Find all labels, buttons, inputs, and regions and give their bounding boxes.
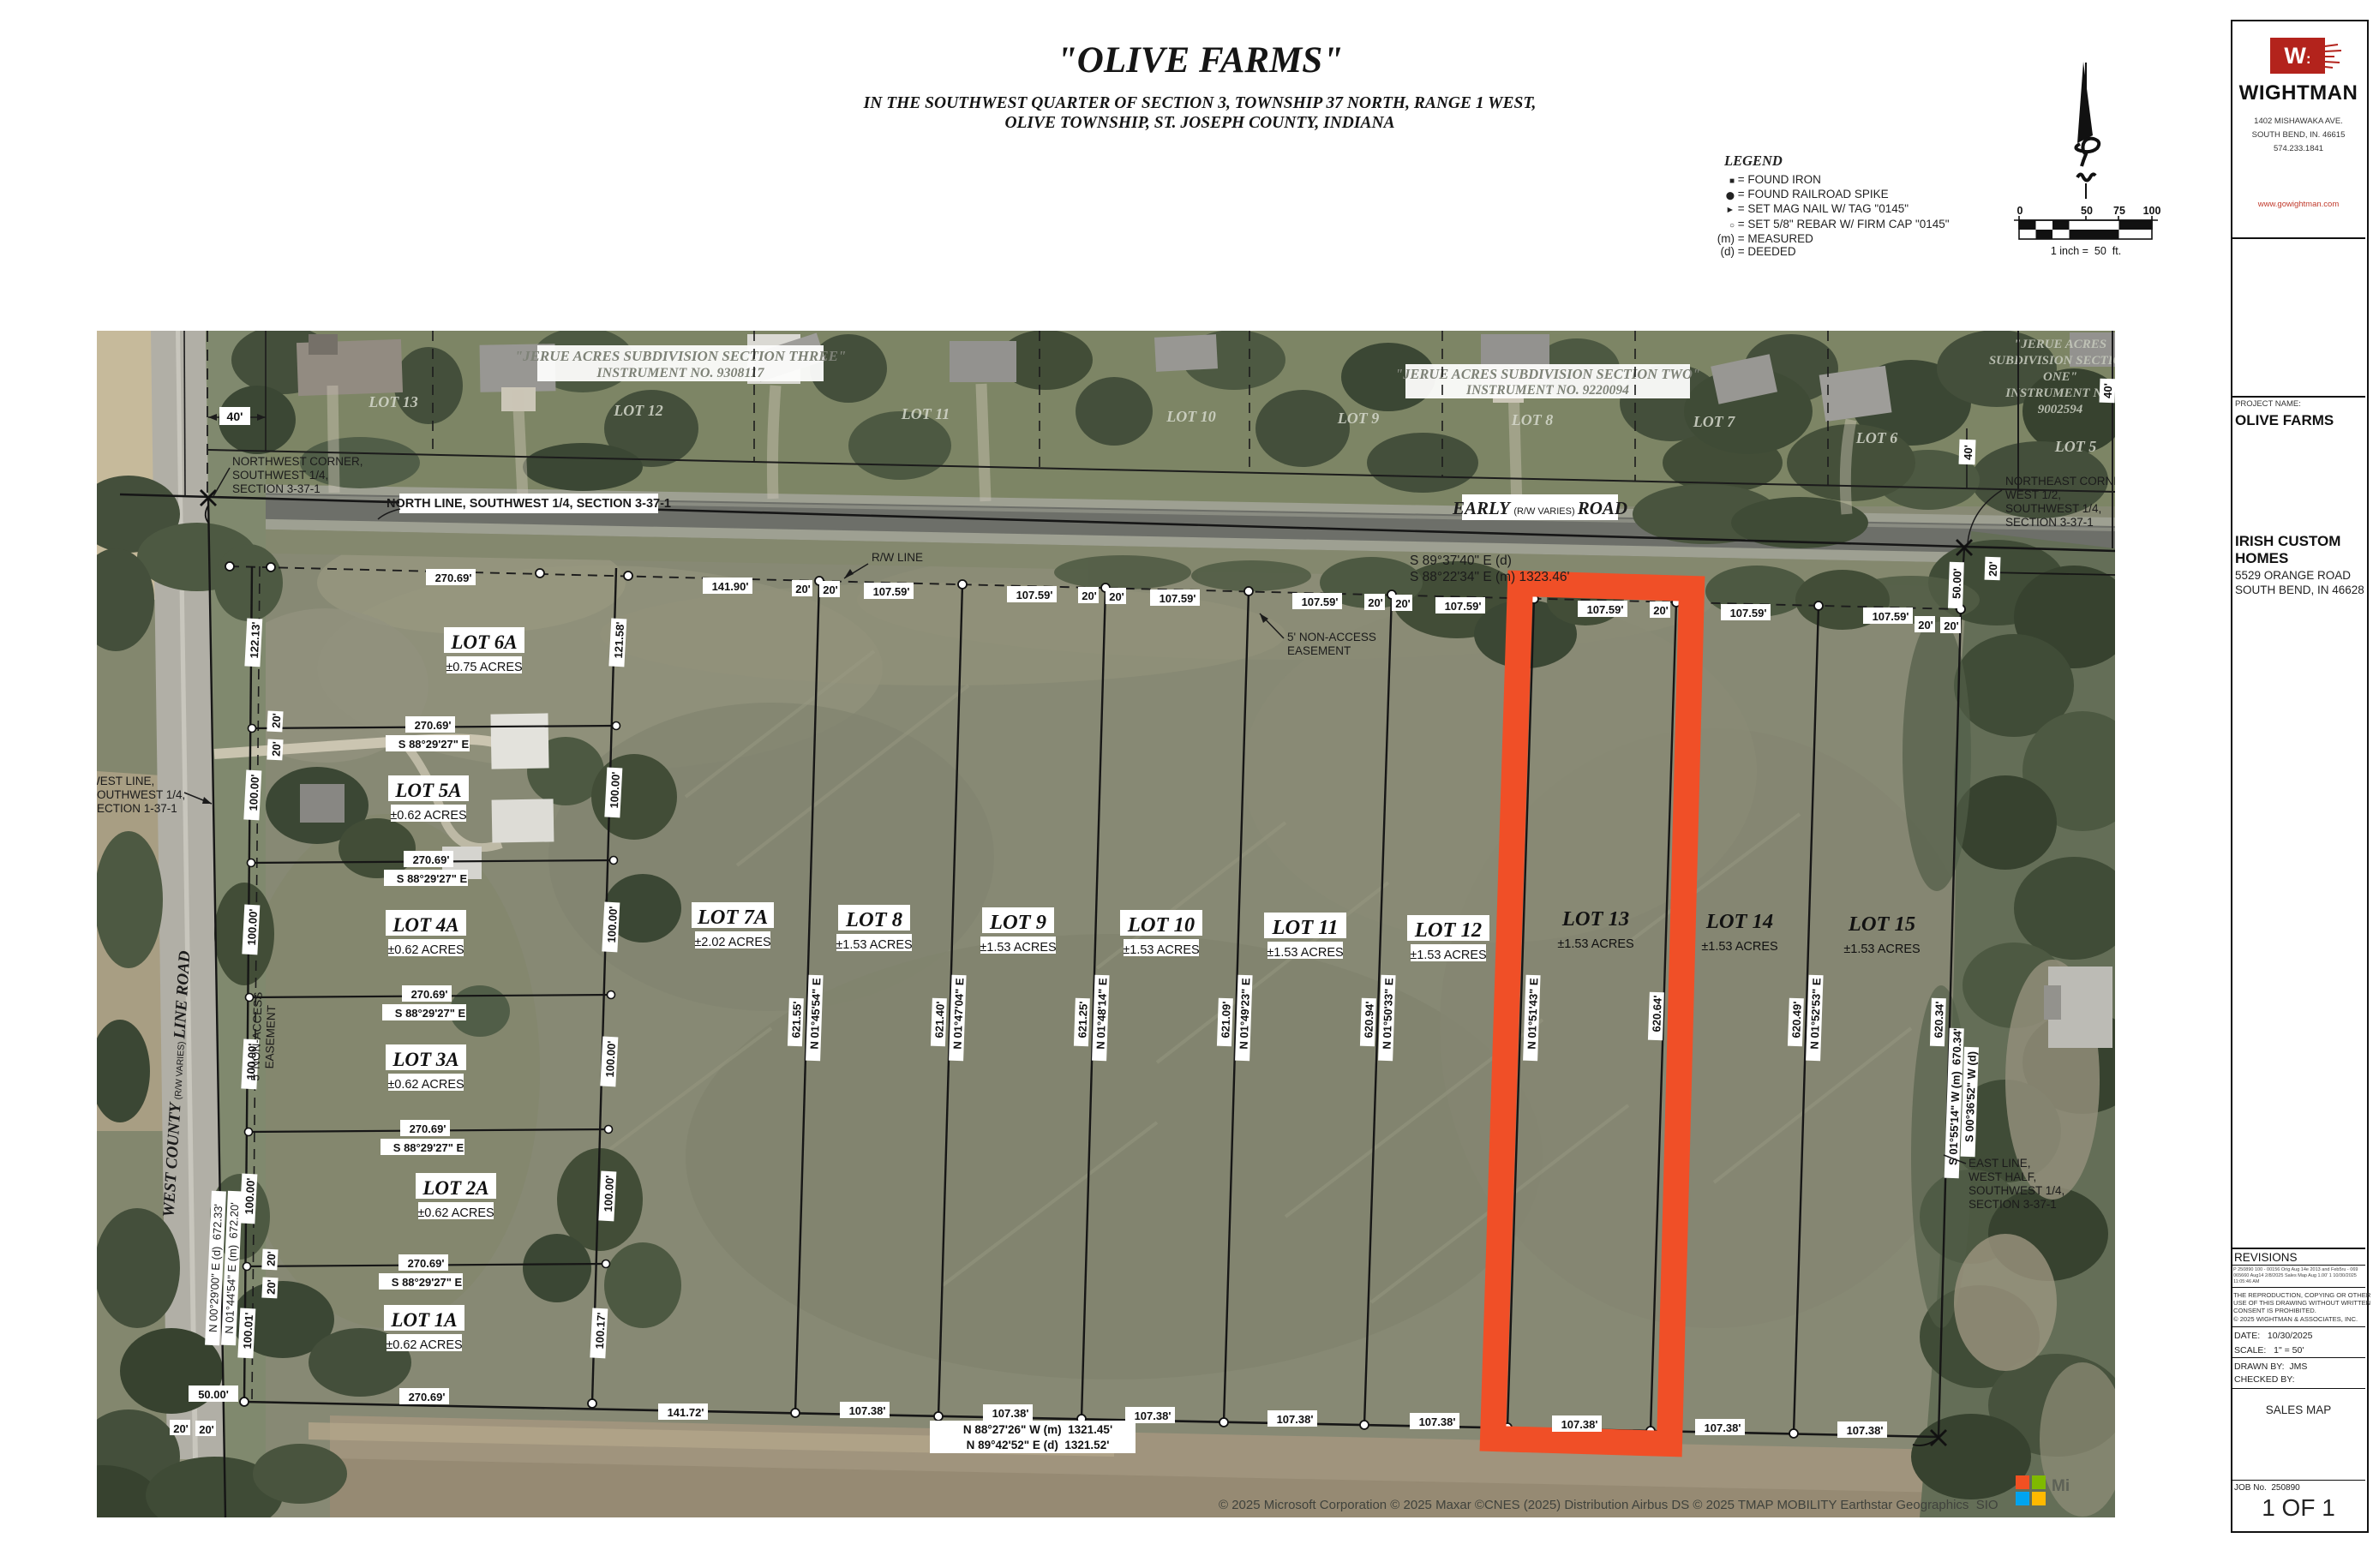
svg-text:LOT 14: LOT 14 (1705, 910, 1773, 933)
svg-text:N 01°47'04" E: N 01°47'04" E (951, 978, 967, 1050)
svg-text:SOUTHWEST 1/4,: SOUTHWEST 1/4, (1969, 1184, 2064, 1197)
svg-text:20': 20' (265, 1279, 279, 1295)
svg-text:LOT 13: LOT 13 (1561, 907, 1629, 931)
svg-text:20': 20' (1944, 619, 1959, 632)
svg-text:122.13': 122.13' (248, 621, 262, 659)
svg-text:270.69': 270.69' (409, 1391, 446, 1403)
svg-text:121.58': 121.58' (612, 621, 626, 659)
svg-text:107.59': 107.59' (1016, 589, 1053, 601)
svg-text:SECTION 3-37-1: SECTION 3-37-1 (232, 482, 321, 495)
svg-text:LOT 9: LOT 9 (989, 911, 1046, 934)
svg-text:107.38': 107.38' (1419, 1415, 1456, 1428)
svg-text:100.00': 100.00' (243, 1177, 257, 1215)
svg-text:±1.53 ACRES: ±1.53 ACRES (980, 941, 1056, 955)
svg-text:107.59': 107.59' (1587, 603, 1624, 616)
svg-text:±2.02 ACRES: ±2.02 ACRES (694, 936, 770, 949)
svg-text:LOT 6A: LOT 6A (450, 631, 517, 653)
svg-text:20': 20' (173, 1422, 189, 1435)
svg-text:621.55': 621.55' (789, 1001, 803, 1038)
svg-text:620.49': 620.49' (1789, 1001, 1803, 1038)
svg-text:270.69': 270.69' (410, 1122, 446, 1135)
svg-text:±0.75 ACRES: ±0.75 ACRES (446, 661, 522, 674)
svg-text:INSTRUMENT NO. 9220094: INSTRUMENT NO. 9220094 (1465, 383, 1629, 398)
svg-text:±1.53 ACRES: ±1.53 ACRES (1557, 937, 1633, 951)
svg-text:107.59': 107.59' (1873, 610, 1909, 623)
svg-text:LOT 10: LOT 10 (1127, 913, 1195, 937)
svg-text:270.69': 270.69' (435, 572, 472, 584)
svg-text:100.00': 100.00' (603, 1040, 618, 1078)
svg-text:20': 20' (823, 584, 838, 596)
svg-text:N 01°50'33" E: N 01°50'33" E (1381, 978, 1396, 1050)
svg-text:NORTHEAST CORNER,: NORTHEAST CORNER, (2005, 475, 2115, 488)
svg-text:S 88°22'34" E (m) 1323.46': S 88°22'34" E (m) 1323.46' (1410, 570, 1570, 584)
svg-text:100.17': 100.17' (593, 1312, 608, 1350)
svg-text:20': 20' (199, 1423, 214, 1436)
svg-text:N 01°52'53" E: N 01°52'53" E (1808, 978, 1824, 1050)
svg-text:N 01°51'43" E: N 01°51'43" E (1525, 978, 1541, 1050)
svg-text:107.59': 107.59' (1160, 592, 1196, 605)
svg-text:±1.53 ACRES: ±1.53 ACRES (836, 938, 912, 952)
svg-text:20': 20' (1986, 561, 2000, 577)
svg-text:LOT 2A: LOT 2A (422, 1177, 488, 1199)
svg-text:107.38': 107.38' (1847, 1424, 1884, 1437)
svg-text:100.00': 100.00' (605, 906, 620, 943)
svg-text:±1.53 ACRES: ±1.53 ACRES (1701, 940, 1777, 954)
svg-text:621.25': 621.25' (1076, 1001, 1089, 1038)
svg-text:141.90': 141.90' (712, 580, 749, 593)
svg-text:100.00': 100.00' (245, 908, 260, 946)
svg-text:LOT 8: LOT 8 (1511, 411, 1554, 428)
svg-text:SOUTHWEST 1/4,: SOUTHWEST 1/4, (97, 788, 185, 801)
svg-text:107.59': 107.59' (1445, 600, 1482, 613)
svg-text:LOT 12: LOT 12 (613, 402, 663, 419)
svg-text:INSTRUMENT NO. 9308117: INSTRUMENT NO. 9308117 (596, 366, 764, 380)
svg-text:WEST 1/2,: WEST 1/2, (2005, 488, 2061, 501)
svg-text:107.38': 107.38' (1561, 1418, 1598, 1431)
svg-text:±0.62 ACRES: ±0.62 ACRES (386, 1338, 462, 1352)
svg-text:20': 20' (1395, 597, 1411, 610)
svg-text:±1.53 ACRES: ±1.53 ACRES (1123, 943, 1199, 957)
svg-text:"JERUE ACRES SUBDIVISION SECTI: "JERUE ACRES SUBDIVISION SECTION THREE" (515, 348, 847, 364)
svg-text:NORTHWEST CORNER,: NORTHWEST CORNER, (232, 455, 363, 468)
svg-text:SOUTHWEST 1/4,: SOUTHWEST 1/4, (232, 469, 328, 482)
svg-text:SOUTHWEST 1/4,: SOUTHWEST 1/4, (2005, 502, 2101, 515)
svg-text:20': 20' (270, 713, 284, 728)
svg-text:LOT 12: LOT 12 (1414, 919, 1482, 942)
svg-text:LOT 11: LOT 11 (901, 405, 950, 422)
svg-text:20': 20' (1368, 596, 1383, 609)
svg-text:EASEMENT: EASEMENT (263, 1005, 279, 1069)
svg-text:N 01°48'14" E: N 01°48'14" E (1094, 978, 1110, 1050)
svg-text:"JERUE ACRES: "JERUE ACRES (2014, 338, 2106, 351)
svg-text:20': 20' (795, 583, 811, 595)
svg-text:50.00': 50.00' (198, 1388, 229, 1401)
svg-text:LOT 3A: LOT 3A (392, 1049, 458, 1070)
svg-text:ONE": ONE" (2043, 370, 2077, 384)
svg-text:N 01°49'23" E: N 01°49'23" E (1237, 978, 1253, 1050)
svg-text:SECTION 3-37-1: SECTION 3-37-1 (1969, 1198, 2057, 1211)
svg-text:107.38': 107.38' (992, 1407, 1029, 1420)
svg-text:N 89°42'52" E (d) 1321.52': N 89°42'52" E (d) 1321.52' (967, 1439, 1110, 1451)
svg-text:EAST LINE,: EAST LINE, (1969, 1157, 2031, 1170)
svg-text:40': 40' (227, 410, 243, 423)
svg-text:LOT 5A: LOT 5A (394, 780, 461, 801)
svg-text:INSTRUMENT NO.: INSTRUMENT NO. (2004, 386, 2115, 400)
svg-text:107.38': 107.38' (849, 1404, 886, 1417)
svg-text:±0.62 ACRES: ±0.62 ACRES (417, 1206, 494, 1220)
svg-text:270.69': 270.69' (411, 988, 448, 1001)
svg-text:107.59': 107.59' (873, 585, 910, 598)
svg-text:LOT 1A: LOT 1A (390, 1309, 457, 1331)
svg-text:EASEMENT: EASEMENT (1287, 644, 1351, 657)
svg-text:WEST LINE,: WEST LINE, (97, 775, 154, 787)
svg-text:270.69': 270.69' (408, 1257, 445, 1270)
svg-text:5' NON-ACCESS: 5' NON-ACCESS (1287, 631, 1376, 643)
svg-text:Mi: Mi (2052, 1477, 2070, 1495)
svg-text:20': 20' (1653, 604, 1669, 617)
svg-text:270.69': 270.69' (413, 853, 450, 866)
svg-text:40': 40' (2101, 383, 2115, 398)
svg-text:107.59': 107.59' (1302, 595, 1339, 608)
svg-text:LOT 11: LOT 11 (1272, 916, 1339, 939)
svg-text:SECTION 1-37-1: SECTION 1-37-1 (97, 802, 177, 815)
svg-text:107.59': 107.59' (1730, 607, 1767, 619)
svg-text:LOT 7A: LOT 7A (697, 906, 768, 929)
svg-text:SECTION 3-37-1: SECTION 3-37-1 (2005, 516, 2094, 529)
svg-text:R/W LINE: R/W LINE (872, 551, 923, 564)
svg-text:20': 20' (1918, 619, 1933, 631)
svg-text:±0.62 ACRES: ±0.62 ACRES (387, 943, 464, 957)
svg-text:S 88°29'27" E: S 88°29'27" E (398, 738, 470, 751)
svg-text:LOT 8: LOT 8 (845, 908, 902, 931)
svg-text:107.38': 107.38' (1135, 1409, 1172, 1422)
svg-text:621.09': 621.09' (1219, 1001, 1232, 1038)
svg-text:NORTH LINE, SOUTHWEST 1/4, SEC: NORTH LINE, SOUTHWEST 1/4, SECTION 3-37-… (387, 497, 671, 511)
svg-text:40': 40' (1962, 445, 1975, 460)
svg-text:620.94': 620.94' (1362, 1001, 1375, 1038)
svg-text:107.38': 107.38' (1705, 1421, 1741, 1434)
svg-text:LOT 6: LOT 6 (1855, 429, 1898, 446)
svg-text:620.34': 620.34' (1932, 1001, 1945, 1038)
svg-text:LOT 15: LOT 15 (1848, 913, 1915, 936)
svg-text:±1.53 ACRES: ±1.53 ACRES (1843, 943, 1920, 956)
svg-text:S 88°29'27" E: S 88°29'27" E (392, 1276, 463, 1289)
svg-text:107.38': 107.38' (1277, 1413, 1314, 1426)
svg-text:LOT 4A: LOT 4A (392, 914, 458, 936)
svg-text:20': 20' (1082, 589, 1097, 602)
svg-text:100: 100 (2143, 205, 2161, 217)
svg-text:© 2025 Microsoft Corporation ©: © 2025 Microsoft Corporation © 2025 Maxa… (1219, 1498, 1998, 1512)
svg-text:WEST HALF,: WEST HALF, (1969, 1170, 2036, 1183)
svg-text:S 88°29'27" E: S 88°29'27" E (397, 872, 468, 885)
svg-text:N 01°45'54" E: N 01°45'54" E (808, 978, 824, 1050)
svg-text:S 88°29'27" E: S 88°29'27" E (393, 1141, 464, 1154)
svg-text:1 inch = 50 ft.: 1 inch = 50 ft. (2051, 245, 2121, 257)
svg-text:75: 75 (2113, 205, 2125, 217)
svg-text:LOT 7: LOT 7 (1693, 413, 1735, 430)
svg-text:SUBDIVISION SECTION: SUBDIVISION SECTION (1989, 354, 2115, 368)
svg-text:50.00': 50.00' (1950, 568, 1963, 599)
svg-text:±0.62 ACRES: ±0.62 ACRES (390, 809, 466, 823)
svg-text:±1.53 ACRES: ±1.53 ACRES (1410, 949, 1486, 962)
svg-text:9002594: 9002594 (2038, 403, 2083, 416)
svg-text:50: 50 (2081, 205, 2093, 217)
svg-text:100.00': 100.00' (247, 774, 261, 811)
svg-text:100.00': 100.00' (608, 771, 622, 809)
svg-text:270.69': 270.69' (415, 719, 452, 732)
svg-text:141.72': 141.72' (668, 1406, 704, 1419)
svg-text:"JERUE ACRES SUBDIVISION SECTI: "JERUE ACRES SUBDIVISION SECTION TWO" (1395, 366, 1700, 382)
svg-text:LOT 5: LOT 5 (2054, 438, 2097, 455)
svg-text:20': 20' (270, 741, 284, 757)
svg-text:LOT 10: LOT 10 (1166, 408, 1216, 425)
svg-text:20': 20' (1109, 590, 1124, 603)
svg-text:±0.62 ACRES: ±0.62 ACRES (387, 1078, 464, 1092)
svg-text:0: 0 (2017, 205, 2023, 217)
svg-text:±1.53 ACRES: ±1.53 ACRES (1267, 946, 1343, 960)
svg-text:N 88°27'26" W (m) 1321.45': N 88°27'26" W (m) 1321.45' (963, 1423, 1112, 1436)
svg-text:S 89°37'40" E (d): S 89°37'40" E (d) (1410, 554, 1512, 568)
svg-text:LOT 9: LOT 9 (1337, 410, 1380, 427)
svg-text:S 88°29'27" E: S 88°29'27" E (395, 1007, 466, 1020)
svg-text:100.01': 100.01' (241, 1312, 255, 1350)
svg-text:100.00': 100.00' (602, 1175, 616, 1212)
svg-text:20': 20' (265, 1251, 279, 1266)
svg-text:620.64': 620.64' (1650, 995, 1663, 1032)
svg-text:LOT 13: LOT 13 (368, 393, 418, 410)
svg-text:621.40': 621.40' (932, 1001, 946, 1038)
